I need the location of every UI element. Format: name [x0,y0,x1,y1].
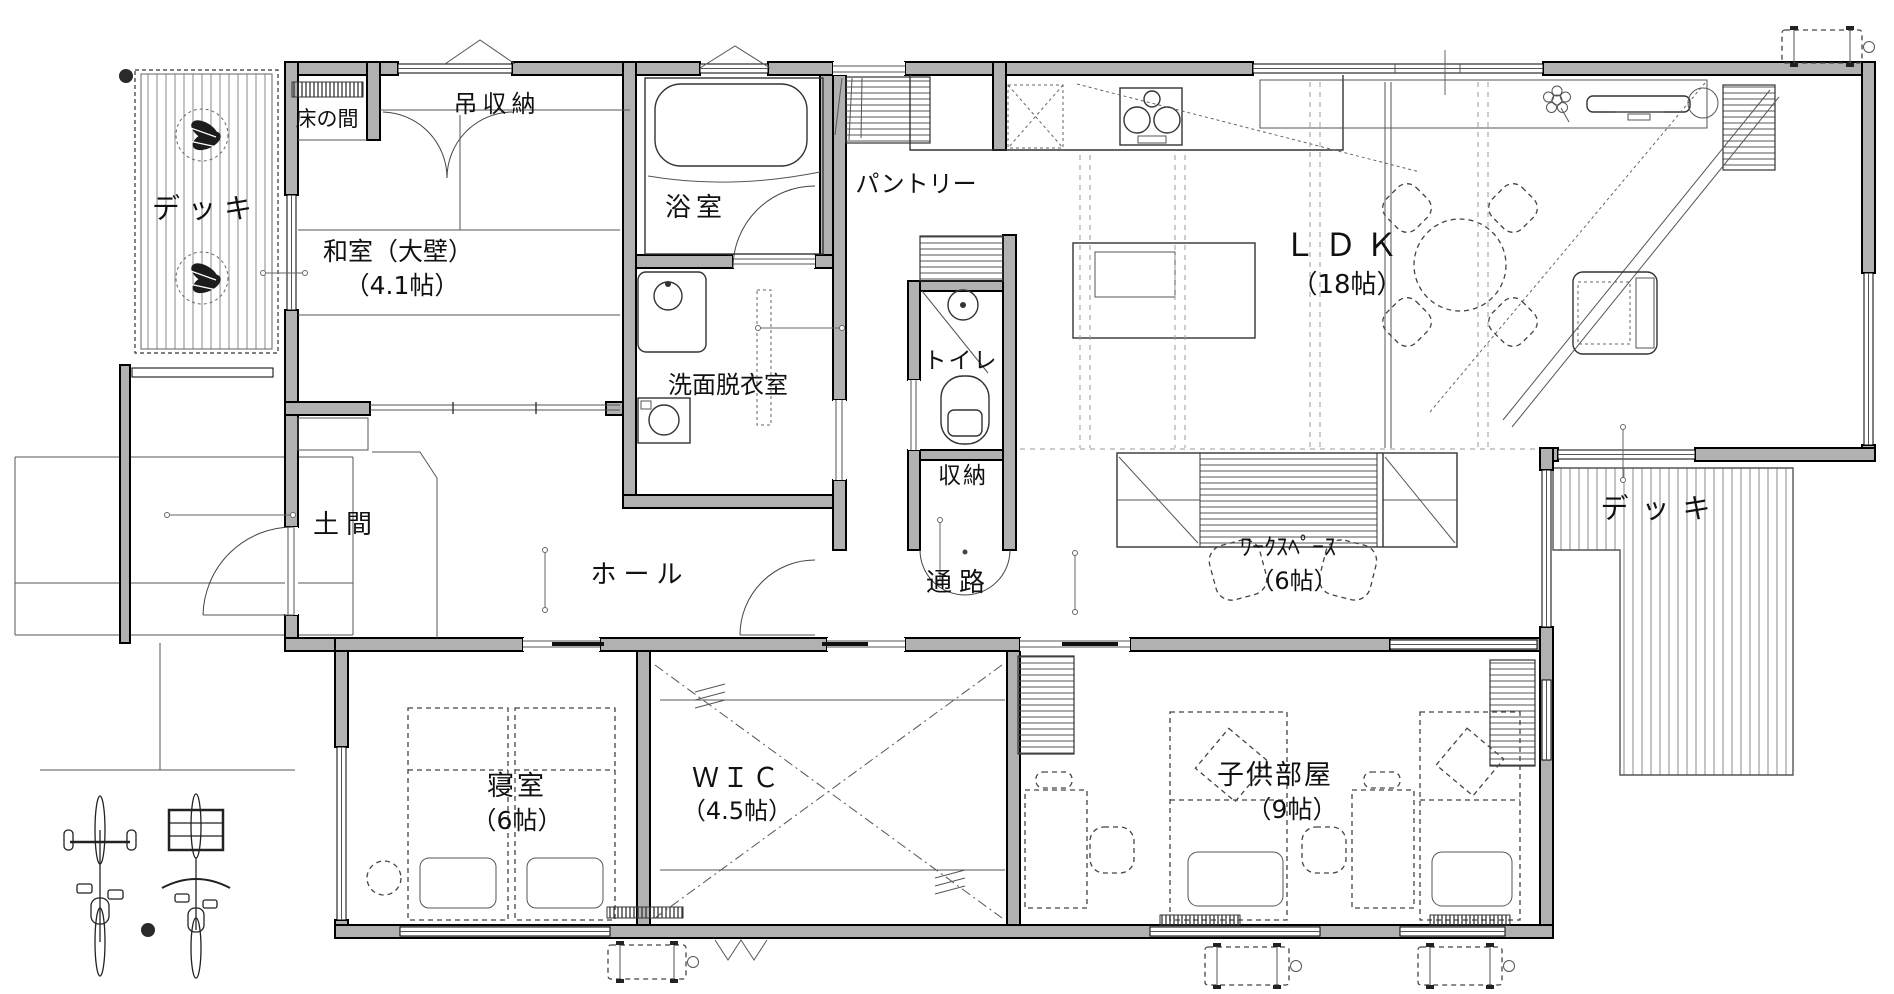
room-size-bedroom: （6帖） [472,806,563,835]
refrigerator-space [1008,85,1063,148]
tv-icon [1587,96,1690,120]
tokonoma-shelf [292,82,363,97]
dining-chair-icon [1483,292,1542,351]
room-label-tokonoma: 床の間 [296,107,359,131]
washing-machine-icon [638,398,690,443]
floor-plan-page: デッキ 床の間 吊収納 和室（大壁） （4.1帖） 浴室 パントリー 洗面脱衣室… [0,0,1894,994]
linen-cabinet [757,290,771,425]
bicycle-icon [162,794,230,978]
desk-chair-icon [1090,827,1134,873]
island-counter [1073,243,1255,338]
floor-plan-drawing: デッキ 床の間 吊収納 和室（大壁） （4.1帖） 浴室 パントリー 洗面脱衣室… [0,0,1894,994]
round-stool [1688,88,1718,118]
room-label-doma: 土間 [313,510,379,540]
room-label-pantry: パントリー [855,170,976,198]
ac-outdoor-unit-icon [1782,26,1875,67]
dining-table-icon [1377,178,1542,351]
room-label-deck-right: デッキ [1600,492,1723,525]
room-label-bedroom: 寝室 [487,771,547,802]
floor-heater [1160,915,1240,925]
tv-board [1260,80,1707,128]
room-label-workspace: ﾜｰｸｽﾍﾟｰｽ [1240,533,1336,561]
pantry-shelf [920,236,1003,281]
pantry-shelf [846,77,930,143]
room-label-ldk: ＬＤＫ [1283,226,1406,264]
room-size-kids-room: （9帖） [1247,795,1338,824]
floor-heater [607,907,683,918]
bicycle-icon [64,796,136,976]
room-label-bathroom: 浴室 [665,193,727,223]
bathtub-icon [648,84,820,182]
ac-outdoor-unit-icon [1418,943,1515,989]
stove-icon [1120,88,1182,145]
room-label-toilet: トイレ [924,348,999,374]
washbasin-icon [638,272,706,352]
room-label-washitsu: 和室（大壁） [323,237,473,266]
ac-outdoor-unit-icon [608,941,699,983]
closet-shelf [1490,660,1535,766]
room-label-hall: ホール [590,560,689,590]
room-size-wic: （4.5帖） [682,797,792,825]
desk-icon [1025,772,1134,908]
desk-icon [1302,772,1414,908]
room-size-washitsu: （4.1帖） [345,271,460,300]
dining-chair-icon [1483,178,1542,237]
vent-mark [715,940,767,960]
room-label-passage: 通路 [926,568,992,598]
entrance-approach [15,365,353,770]
room-size-ldk: （18帖） [1291,270,1402,300]
closet-shelf [1018,656,1074,754]
floor-lines [292,82,620,638]
flower-icon [1544,86,1571,122]
room-label-washroom: 洗面脱衣室 [668,371,788,399]
ceiling-grid [1020,82,1538,449]
living-furniture [1020,80,1779,449]
room-label-kids-room: 子供部屋 [1217,760,1333,791]
room-label-storage: 収納 [938,463,988,489]
desk-chair-icon [1302,827,1346,873]
ac-outdoor-unit-icon [1205,943,1302,989]
dining-chair-icon [1377,292,1436,351]
room-label-hanging-storage: 吊収納 [454,90,541,118]
sofa-icon [1573,272,1657,354]
round-stool [367,861,401,895]
floor-heater [1430,915,1510,925]
room-label-deck-left: デッキ [152,192,260,225]
room-label-wic: ＷＩＣ [692,763,782,794]
room-size-workspace: （6帖） [1250,567,1337,595]
